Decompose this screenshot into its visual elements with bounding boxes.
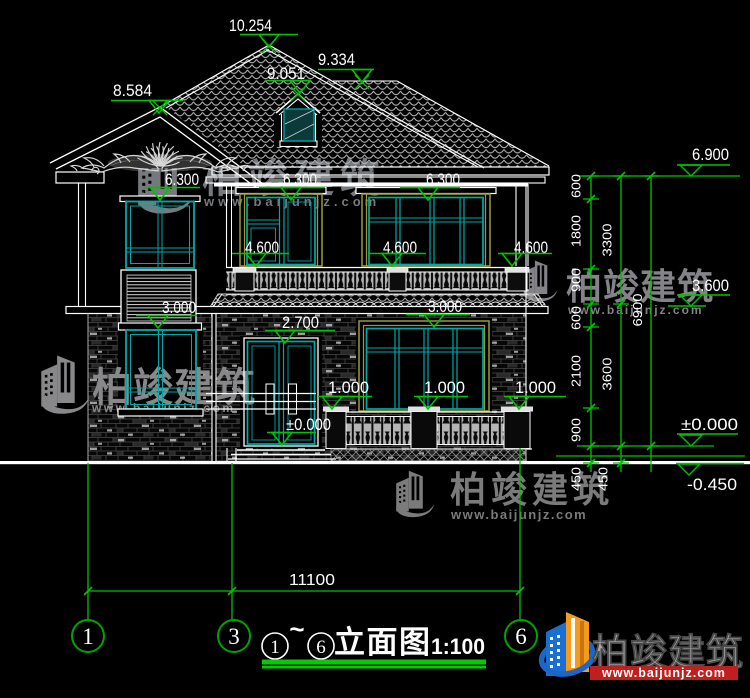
svg-text:600: 600 — [569, 306, 584, 330]
svg-text:3300: 3300 — [600, 224, 615, 257]
svg-text:6: 6 — [316, 637, 326, 658]
svg-text:-0.450: -0.450 — [687, 475, 737, 494]
svg-text:11100: 11100 — [289, 572, 335, 589]
svg-text:柏竣建筑: 柏竣建筑 — [450, 469, 614, 510]
svg-text:3.000: 3.000 — [162, 298, 196, 317]
svg-text:6900: 6900 — [630, 294, 645, 327]
svg-text:1: 1 — [82, 624, 94, 649]
svg-text:1.000: 1.000 — [328, 378, 369, 397]
svg-text:3.600: 3.600 — [692, 276, 729, 295]
svg-text:900: 900 — [569, 418, 584, 442]
svg-text:~: ~ — [289, 614, 304, 644]
svg-text:450: 450 — [569, 467, 584, 491]
svg-text:1.000: 1.000 — [515, 378, 556, 397]
svg-text:1800: 1800 — [569, 215, 584, 247]
svg-text:2100: 2100 — [569, 355, 584, 387]
svg-text:6: 6 — [515, 624, 527, 649]
svg-text:3600: 3600 — [600, 358, 615, 391]
svg-text:8.584: 8.584 — [113, 81, 152, 100]
svg-text:3.000: 3.000 — [428, 297, 462, 316]
svg-text:www.baijunjz.com: www.baijunjz.com — [601, 666, 726, 680]
svg-text:1:100: 1:100 — [431, 634, 485, 659]
svg-text:900: 900 — [569, 268, 584, 292]
svg-text:10.254: 10.254 — [229, 16, 272, 35]
svg-text:3: 3 — [228, 624, 240, 649]
svg-text:450: 450 — [596, 467, 611, 491]
svg-text:6.300: 6.300 — [165, 170, 199, 189]
svg-text:www.baijunjz.com: www.baijunjz.com — [450, 507, 587, 522]
svg-text:立面图: 立面图 — [334, 625, 432, 660]
svg-text:2.700: 2.700 — [282, 313, 319, 332]
svg-text:±0.000: ±0.000 — [286, 415, 331, 434]
svg-text:6.900: 6.900 — [692, 145, 729, 164]
svg-text:600: 600 — [569, 174, 584, 198]
svg-text:6.300: 6.300 — [283, 170, 317, 189]
svg-text:9.334: 9.334 — [318, 50, 355, 69]
svg-text:6.300: 6.300 — [426, 170, 460, 189]
svg-text:www.baijunjz.com: www.baijunjz.com — [203, 194, 380, 209]
svg-text:1.000: 1.000 — [424, 378, 465, 397]
svg-text:1: 1 — [270, 637, 280, 658]
svg-text:±0.000: ±0.000 — [681, 415, 738, 434]
